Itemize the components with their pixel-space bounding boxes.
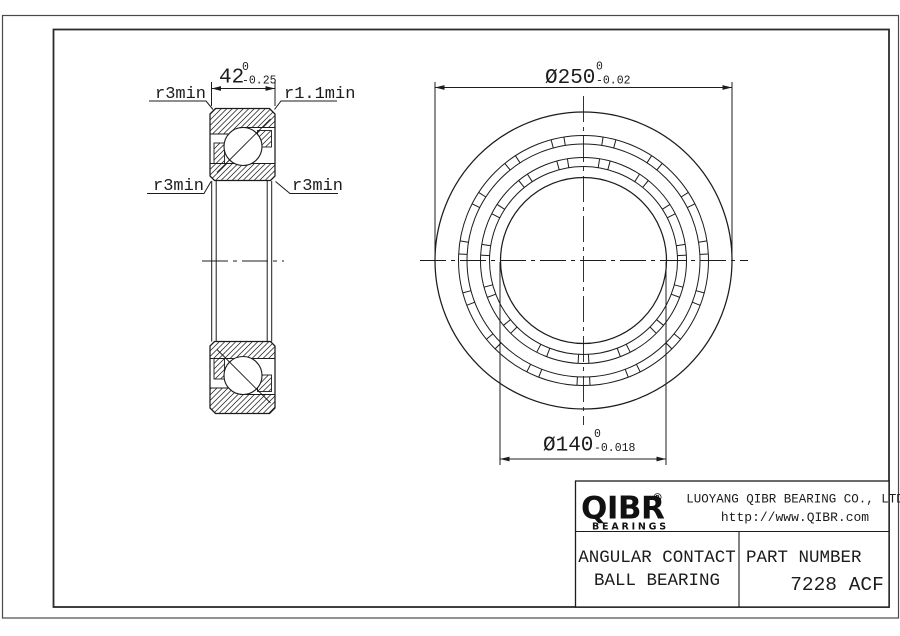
od-dim-tol-upper: 0 <box>596 61 603 74</box>
inner-ring-section-bottom <box>210 342 275 359</box>
part-number-value: 7228 ACF <box>790 574 884 596</box>
bearing-section-view <box>202 109 284 414</box>
width-dim-tol-lower: -0.25 <box>242 75 277 88</box>
inner-ring-section-top <box>210 164 275 181</box>
bore-arrow-right <box>657 457 667 462</box>
company-website: http://www.QIBR.com <box>721 510 869 525</box>
bore-dim-tol-lower: -0.018 <box>594 442 636 455</box>
inner-ring-shoulder-left-top <box>214 143 225 164</box>
registered-mark-icon: ® <box>652 491 663 504</box>
od-dim-tol-lower: -0.02 <box>596 75 631 88</box>
bore-dim-value: Ø140 <box>543 435 593 458</box>
product-name-line1: ANGULAR CONTACT <box>578 548 736 568</box>
drawing-sheet: 42 0 -0.25 r3min r1.1min r3min r3min Ø2 <box>0 0 900 636</box>
width-dim-tol-upper: 0 <box>242 61 249 74</box>
inner-ring-shoulder-left-bottom <box>214 359 225 380</box>
od-arrow-right <box>723 85 733 90</box>
od-dim-value: Ø250 <box>545 67 595 90</box>
company-name: LUOYANG QIBR BEARING CO., LTD <box>686 493 900 507</box>
bearing-front-view <box>420 96 748 425</box>
width-dim-value: 42 <box>219 67 244 90</box>
bore-arrow-left <box>500 457 510 462</box>
od-arrow-left <box>435 85 445 90</box>
company-logo-subtext: BEARINGS <box>592 522 669 533</box>
product-name-line2: BALL BEARING <box>594 571 720 591</box>
bearing-drawing: 42 0 -0.25 r3min r1.1min r3min r3min Ø2 <box>0 0 900 636</box>
part-number-label: PART NUMBER <box>746 548 862 568</box>
bore-dim-tol-upper: 0 <box>594 428 601 441</box>
title-block: QIBR ® BEARINGS LUOYANG QIBR BEARING CO.… <box>576 481 900 607</box>
